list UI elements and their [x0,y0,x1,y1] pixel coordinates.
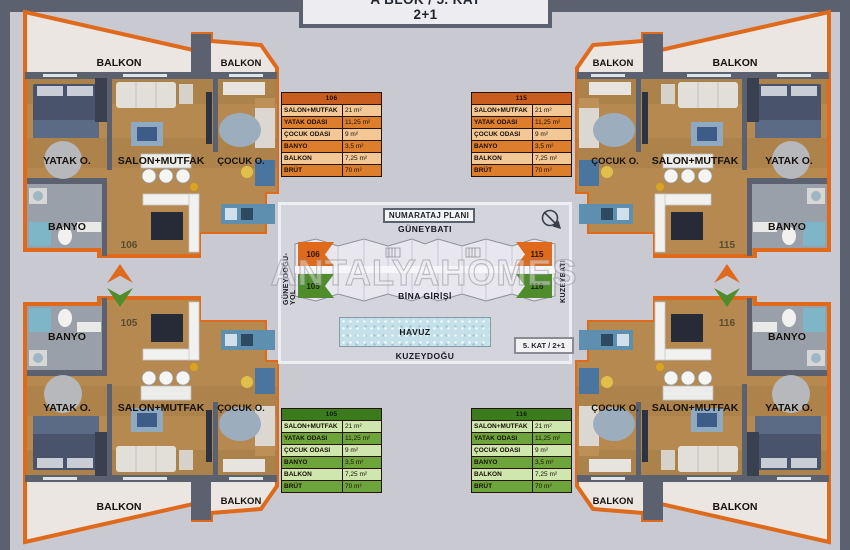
room-label: BRÜT [282,481,343,492]
bathroom-label: BANYO [768,221,806,233]
bedroom-label: YATAK O. [765,155,813,167]
kids-room-label: ÇOCUK O. [591,156,639,167]
title-line2: 2+1 [413,7,437,22]
unit-number: 106 [121,240,138,251]
unit-number: 116 [719,318,736,329]
room-area: 21 m² [343,105,381,116]
unit-table-header: 106 [282,93,381,105]
room-area: 3,5 m² [533,141,571,152]
table-row: BRÜT70 m² [282,481,381,492]
room-area: 9 m² [533,445,571,456]
apartment-graphics [577,12,829,256]
apartment-plan-105: BANYO 105 YATAK O. SALON+MUTFAK ÇOCUK O.… [2,294,286,546]
room-label: SALON+MUTFAK [282,105,343,116]
apartment-plan-106: BALKON BALKON YATAK O. SALON+MUTFAK ÇOCU… [2,8,286,260]
bathroom-label: BANYO [48,331,86,343]
table-row: ÇOCUK ODASI9 m² [472,445,571,457]
table-row: YATAK ODASI11,25 m² [472,117,571,129]
living-kitchen-label: SALON+MUTFAK [652,155,739,167]
balcony-label: BALKON [593,496,634,507]
table-row: BALKON7,25 m² [282,153,381,165]
room-label: BANYO [472,457,533,468]
room-label: SALON+MUTFAK [472,421,533,432]
bathroom-label: BANYO [768,331,806,343]
unit-table-116: 116 SALON+MUTFAK21 m² YATAK ODASI11,25 m… [471,408,572,493]
up-arrow-icon [107,264,133,283]
room-label: BRÜT [472,481,533,492]
table-row: SALON+MUTFAK21 m² [472,421,571,433]
living-kitchen-label: SALON+MUTFAK [118,402,205,414]
pool-label: HAVUZ [399,327,430,337]
table-row: SALON+MUTFAK21 m² [282,105,381,117]
up-arrow-icon [714,264,740,283]
table-row: BANYO3,5 m² [282,457,381,469]
room-area: 3,5 m² [343,457,381,468]
table-row: ÇOCUK ODASI9 m² [282,129,381,141]
bedroom-label: YATAK O. [43,402,91,414]
room-area: 11,25 m² [343,433,381,444]
room-label: YATAK ODASI [282,117,343,128]
room-label: BANYO [282,141,343,152]
table-row: BANYO3,5 m² [282,141,381,153]
table-row: ÇOCUK ODASI9 m² [472,129,571,141]
unit-table-105: 105 SALON+MUTFAK21 m² YATAK ODASI11,25 m… [281,408,382,493]
room-area: 3,5 m² [343,141,381,152]
table-row: YATAK ODASI11,25 m² [282,117,381,129]
balcony-label: BALKON [97,57,142,69]
bathroom-label: BANYO [48,221,86,233]
kids-room-label: ÇOCUK O. [217,156,265,167]
apartment-plan-115: BALKON BALKON ÇOCUK O. SALON+MUTFAK YATA… [568,8,850,260]
room-label: ÇOCUK ODASI [472,445,533,456]
plan-unit-number: 105 [306,282,320,291]
balcony-label: BALKON [97,501,142,513]
table-row: BALKON7,25 m² [282,469,381,481]
plan-title: NUMARATAJ PLANI [383,208,475,223]
table-row: YATAK ODASI11,25 m² [282,433,381,445]
table-row: BALKON7,25 m² [472,469,571,481]
table-row: YATAK ODASI11,25 m² [472,433,571,445]
kids-room-label: ÇOCUK O. [591,403,639,414]
living-kitchen-label: SALON+MUTFAK [118,155,205,167]
plan-unit-number: 116 [531,282,544,291]
table-row: SALON+MUTFAK21 m² [282,421,381,433]
room-area: 3,5 m² [533,457,571,468]
room-area: 7,25 m² [533,153,571,164]
room-label: YATAK ODASI [282,433,343,444]
balcony-label: BALKON [713,501,758,513]
direction-southwest: GÜNEYBATI [281,224,569,234]
room-area: 70 m² [533,481,571,492]
room-area: 9 m² [343,129,381,140]
room-area: 70 m² [343,481,381,492]
room-label: BRÜT [282,165,343,176]
apartment-graphics [25,12,277,256]
unit-table-106: 106 SALON+MUTFAK21 m² YATAK ODASI11,25 m… [281,92,382,177]
room-label: ÇOCUK ODASI [282,129,343,140]
plan-unit-number: 106 [306,250,320,259]
room-label: BALKON [472,153,533,164]
balcony-label: BALKON [593,58,634,69]
room-label: BANYO [472,141,533,152]
room-label: ÇOCUK ODASI [472,129,533,140]
table-row: BRÜT70 m² [282,165,381,176]
table-row: BALKON7,25 m² [472,153,571,165]
unit-table-header: 105 [282,409,381,421]
room-area: 9 m² [533,129,571,140]
room-area: 21 m² [343,421,381,432]
room-area: 9 m² [343,445,381,456]
table-row: BRÜT70 m² [472,165,571,176]
room-label: YATAK ODASI [472,433,533,444]
apartment-plan-116: BANYO 116 ÇOCUK O. SALON+MUTFAK YATAK O.… [568,294,850,546]
unit-number: 105 [121,318,138,329]
room-area: 70 m² [343,165,381,176]
table-row: BANYO3,5 m² [472,141,571,153]
balcony-label: BALKON [713,57,758,69]
floorplan-page: A BLOK / 5. KAT 2+1 [0,0,850,550]
table-row: ÇOCUK ODASI9 m² [282,445,381,457]
room-area: 7,25 m² [533,469,571,480]
room-area: 11,25 m² [343,117,381,128]
pool: HAVUZ [339,317,491,347]
room-label: BANYO [282,457,343,468]
room-area: 21 m² [533,105,571,116]
compass-icon [539,207,565,233]
room-area: 7,25 m² [343,469,381,480]
room-label: BALKON [282,153,343,164]
room-label: ÇOCUK ODASI [282,445,343,456]
room-area: 11,25 m² [533,433,571,444]
building-entrance-label: BİNA GİRİŞİ [281,291,569,301]
plan-unit-number: 115 [531,250,544,259]
table-row: BRÜT70 m² [472,481,571,492]
room-label: BALKON [282,469,343,480]
living-kitchen-label: SALON+MUTFAK [652,402,739,414]
room-label: YATAK ODASI [472,117,533,128]
bedroom-label: YATAK O. [765,402,813,414]
unit-table-header: 115 [472,93,571,105]
unit-table-header: 116 [472,409,571,421]
unit-table-115: 115 SALON+MUTFAK21 m² YATAK ODASI11,25 m… [471,92,572,177]
bedroom-label: YATAK O. [43,155,91,167]
room-label: BALKON [472,469,533,480]
kids-room-label: ÇOCUK O. [217,403,265,414]
room-label: SALON+MUTFAK [282,421,343,432]
balcony-label: BALKON [221,496,262,507]
room-area: 7,25 m² [343,153,381,164]
room-area: 21 m² [533,421,571,432]
room-area: 11,25 m² [533,117,571,128]
table-row: BANYO3,5 m² [472,457,571,469]
block-floor-title: A BLOK / 5. KAT 2+1 [299,0,552,28]
numbering-plan-panel: NUMARATAJ PLANI GÜNEYBATI [278,202,572,364]
unit-number: 115 [719,240,736,251]
table-row: SALON+MUTFAK21 m² [472,105,571,117]
balcony-label: BALKON [221,58,262,69]
room-label: BRÜT [472,165,533,176]
title-line1: A BLOK / 5. KAT [370,0,480,7]
room-area: 70 m² [533,165,571,176]
room-label: SALON+MUTFAK [472,105,533,116]
floor-type-badge: 5. KAT / 2+1 [514,337,574,354]
